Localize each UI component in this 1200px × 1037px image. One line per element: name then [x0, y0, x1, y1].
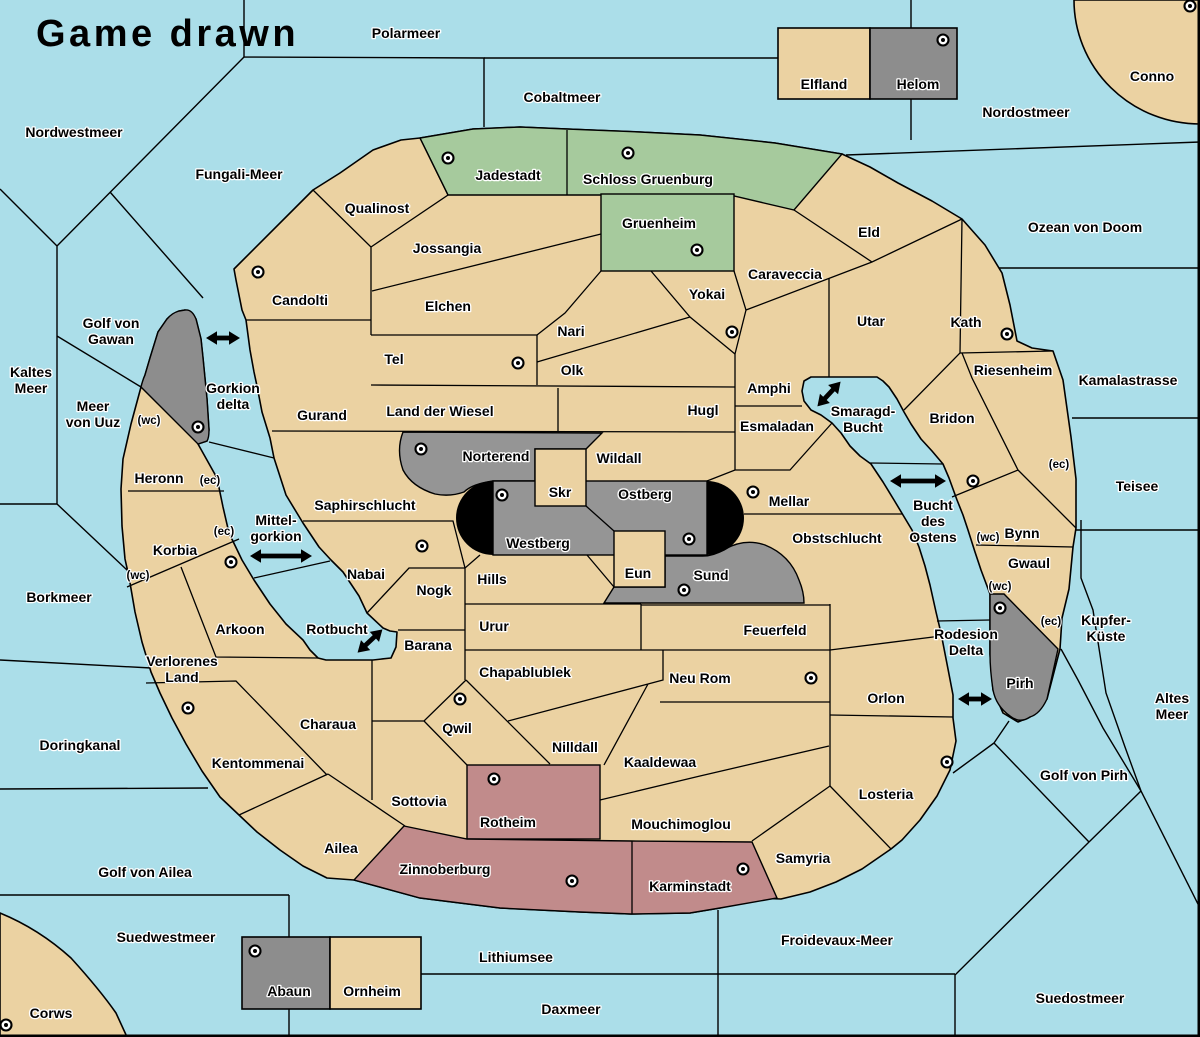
svg-text:Kentommenai: Kentommenai [212, 755, 305, 771]
svg-text:(wc): (wc) [977, 532, 1000, 544]
svg-text:Bucht: Bucht [843, 419, 883, 435]
svg-text:Nilldall: Nilldall [552, 739, 598, 755]
svg-text:Elfland: Elfland [801, 76, 848, 92]
svg-text:Utar: Utar [857, 313, 886, 329]
svg-text:Olk: Olk [561, 362, 584, 378]
svg-text:Westberg: Westberg [506, 535, 570, 551]
svg-text:Samyria: Samyria [776, 850, 831, 866]
svg-text:Wildall: Wildall [597, 450, 642, 466]
svg-text:Skr: Skr [549, 484, 572, 500]
svg-text:Rotheim: Rotheim [480, 814, 536, 830]
svg-text:Gurand: Gurand [297, 407, 347, 423]
svg-text:(ec): (ec) [1049, 459, 1070, 471]
svg-text:Charaua: Charaua [300, 716, 356, 732]
svg-text:(wc): (wc) [138, 415, 161, 427]
svg-text:Suedwestmeer: Suedwestmeer [117, 929, 216, 945]
svg-text:Helom: Helom [897, 76, 940, 92]
svg-text:Esmaladan: Esmaladan [740, 418, 814, 434]
svg-text:Delta: Delta [949, 642, 983, 658]
svg-text:Polarmeer: Polarmeer [372, 25, 441, 41]
svg-text:Bucht: Bucht [913, 497, 953, 513]
svg-text:Meer: Meer [15, 380, 48, 396]
svg-text:Nari: Nari [557, 323, 584, 339]
svg-text:Zinnoberburg: Zinnoberburg [400, 861, 491, 877]
svg-text:Smaragd-: Smaragd- [831, 403, 896, 419]
svg-text:Nordwestmeer: Nordwestmeer [25, 124, 123, 140]
svg-text:Land der Wiesel: Land der Wiesel [386, 403, 493, 419]
svg-text:Suedostmeer: Suedostmeer [1036, 990, 1125, 1006]
svg-text:Mouchimoglou: Mouchimoglou [631, 816, 731, 832]
svg-text:Conno: Conno [1130, 68, 1174, 84]
svg-text:Meer: Meer [1156, 706, 1189, 722]
svg-text:Sund: Sund [694, 567, 729, 583]
svg-text:Tel: Tel [384, 351, 403, 367]
svg-text:Cobaltmeer: Cobaltmeer [523, 89, 601, 105]
svg-text:delta: delta [217, 396, 250, 412]
svg-text:Rotbucht: Rotbucht [306, 621, 368, 637]
svg-text:Elchen: Elchen [425, 298, 471, 314]
svg-text:Gwaul: Gwaul [1008, 555, 1050, 571]
svg-text:Küste: Küste [1087, 628, 1126, 644]
svg-text:Urur: Urur [479, 618, 509, 634]
svg-text:Fungali-Meer: Fungali-Meer [195, 166, 283, 182]
svg-text:Ornheim: Ornheim [343, 983, 401, 999]
svg-text:Mellar: Mellar [769, 493, 810, 509]
svg-text:Sottovia: Sottovia [391, 793, 446, 809]
svg-text:Jadestadt: Jadestadt [475, 167, 541, 183]
svg-text:Jossangia: Jossangia [413, 240, 482, 256]
svg-text:Meer: Meer [77, 398, 110, 414]
svg-text:Losteria: Losteria [859, 786, 914, 802]
svg-text:Golf von Ailea: Golf von Ailea [98, 864, 192, 880]
svg-text:von Uuz: von Uuz [66, 414, 120, 430]
svg-text:Gorkion: Gorkion [206, 380, 260, 396]
svg-text:Borkmeer: Borkmeer [26, 589, 92, 605]
svg-text:(ec): (ec) [214, 526, 235, 538]
svg-text:Pirh: Pirh [1006, 675, 1033, 691]
svg-text:(ec): (ec) [1041, 616, 1062, 628]
svg-text:Land: Land [165, 669, 198, 685]
svg-text:Golf von Pirh: Golf von Pirh [1040, 767, 1128, 783]
svg-text:Bynn: Bynn [1005, 525, 1040, 541]
svg-text:Eld: Eld [858, 224, 880, 240]
svg-text:Doringkanal: Doringkanal [40, 737, 121, 753]
svg-text:Nabai: Nabai [347, 566, 385, 582]
svg-text:Froidevaux-Meer: Froidevaux-Meer [781, 932, 894, 948]
svg-text:Ostberg: Ostberg [618, 486, 672, 502]
svg-text:Hills: Hills [477, 571, 507, 587]
svg-text:Mittel-: Mittel- [255, 512, 297, 528]
svg-text:Corws: Corws [30, 1005, 73, 1021]
svg-text:Nordostmeer: Nordostmeer [982, 104, 1070, 120]
svg-text:Bridon: Bridon [929, 410, 974, 426]
svg-text:Daxmeer: Daxmeer [541, 1001, 601, 1017]
svg-text:Kaaldewaa: Kaaldewaa [624, 754, 697, 770]
svg-text:des: des [921, 513, 945, 529]
svg-text:Obstschlucht: Obstschlucht [792, 530, 882, 546]
svg-text:(ec): (ec) [200, 475, 221, 487]
svg-text:Chapablublek: Chapablublek [479, 664, 571, 680]
svg-text:Ozean von Doom: Ozean von Doom [1028, 219, 1142, 235]
svg-text:Abaun: Abaun [267, 983, 311, 999]
svg-text:Amphi: Amphi [747, 380, 791, 396]
svg-text:Korbia: Korbia [153, 542, 198, 558]
svg-text:Candolti: Candolti [272, 292, 328, 308]
svg-text:Ostens: Ostens [909, 529, 957, 545]
svg-text:(wc): (wc) [989, 581, 1012, 593]
svg-text:gorkion: gorkion [250, 528, 301, 544]
svg-text:Schloss Gruenburg: Schloss Gruenburg [583, 171, 713, 187]
svg-text:Saphirschlucht: Saphirschlucht [314, 497, 415, 513]
svg-text:Verlorenes: Verlorenes [146, 653, 218, 669]
svg-text:Gawan: Gawan [88, 331, 134, 347]
svg-text:Karminstadt: Karminstadt [649, 878, 731, 894]
svg-text:Orlon: Orlon [867, 690, 904, 706]
svg-text:Lithiumsee: Lithiumsee [479, 949, 553, 965]
svg-text:Yokai: Yokai [689, 286, 725, 302]
svg-text:Caraveccia: Caraveccia [748, 266, 822, 282]
svg-text:Ailea: Ailea [324, 840, 358, 856]
svg-text:Nogk: Nogk [417, 582, 452, 598]
svg-text:Arkoon: Arkoon [216, 621, 265, 637]
svg-text:Barana: Barana [404, 637, 452, 653]
svg-text:Feuerfeld: Feuerfeld [743, 622, 806, 638]
svg-text:Kath: Kath [950, 314, 981, 330]
svg-text:(wc): (wc) [127, 570, 150, 582]
svg-text:Rodesion: Rodesion [934, 626, 998, 642]
svg-text:Qualinost: Qualinost [345, 200, 410, 216]
svg-text:Neu Rom: Neu Rom [669, 670, 730, 686]
svg-text:Teisee: Teisee [1116, 478, 1159, 494]
svg-text:Altes: Altes [1155, 690, 1189, 706]
svg-text:Eun: Eun [625, 565, 651, 581]
svg-text:Qwil: Qwil [442, 720, 472, 736]
svg-text:Kamalastrasse: Kamalastrasse [1079, 372, 1178, 388]
svg-text:Kupfer-: Kupfer- [1081, 612, 1131, 628]
svg-text:Kaltes: Kaltes [10, 364, 52, 380]
svg-text:Golf von: Golf von [83, 315, 140, 331]
svg-text:Heronn: Heronn [135, 470, 184, 486]
svg-text:Hugl: Hugl [687, 402, 718, 418]
svg-text:Riesenheim: Riesenheim [974, 362, 1053, 378]
svg-text:Gruenheim: Gruenheim [622, 215, 696, 231]
svg-text:Game drawn: Game drawn [36, 13, 299, 55]
svg-text:Norterend: Norterend [463, 448, 530, 464]
